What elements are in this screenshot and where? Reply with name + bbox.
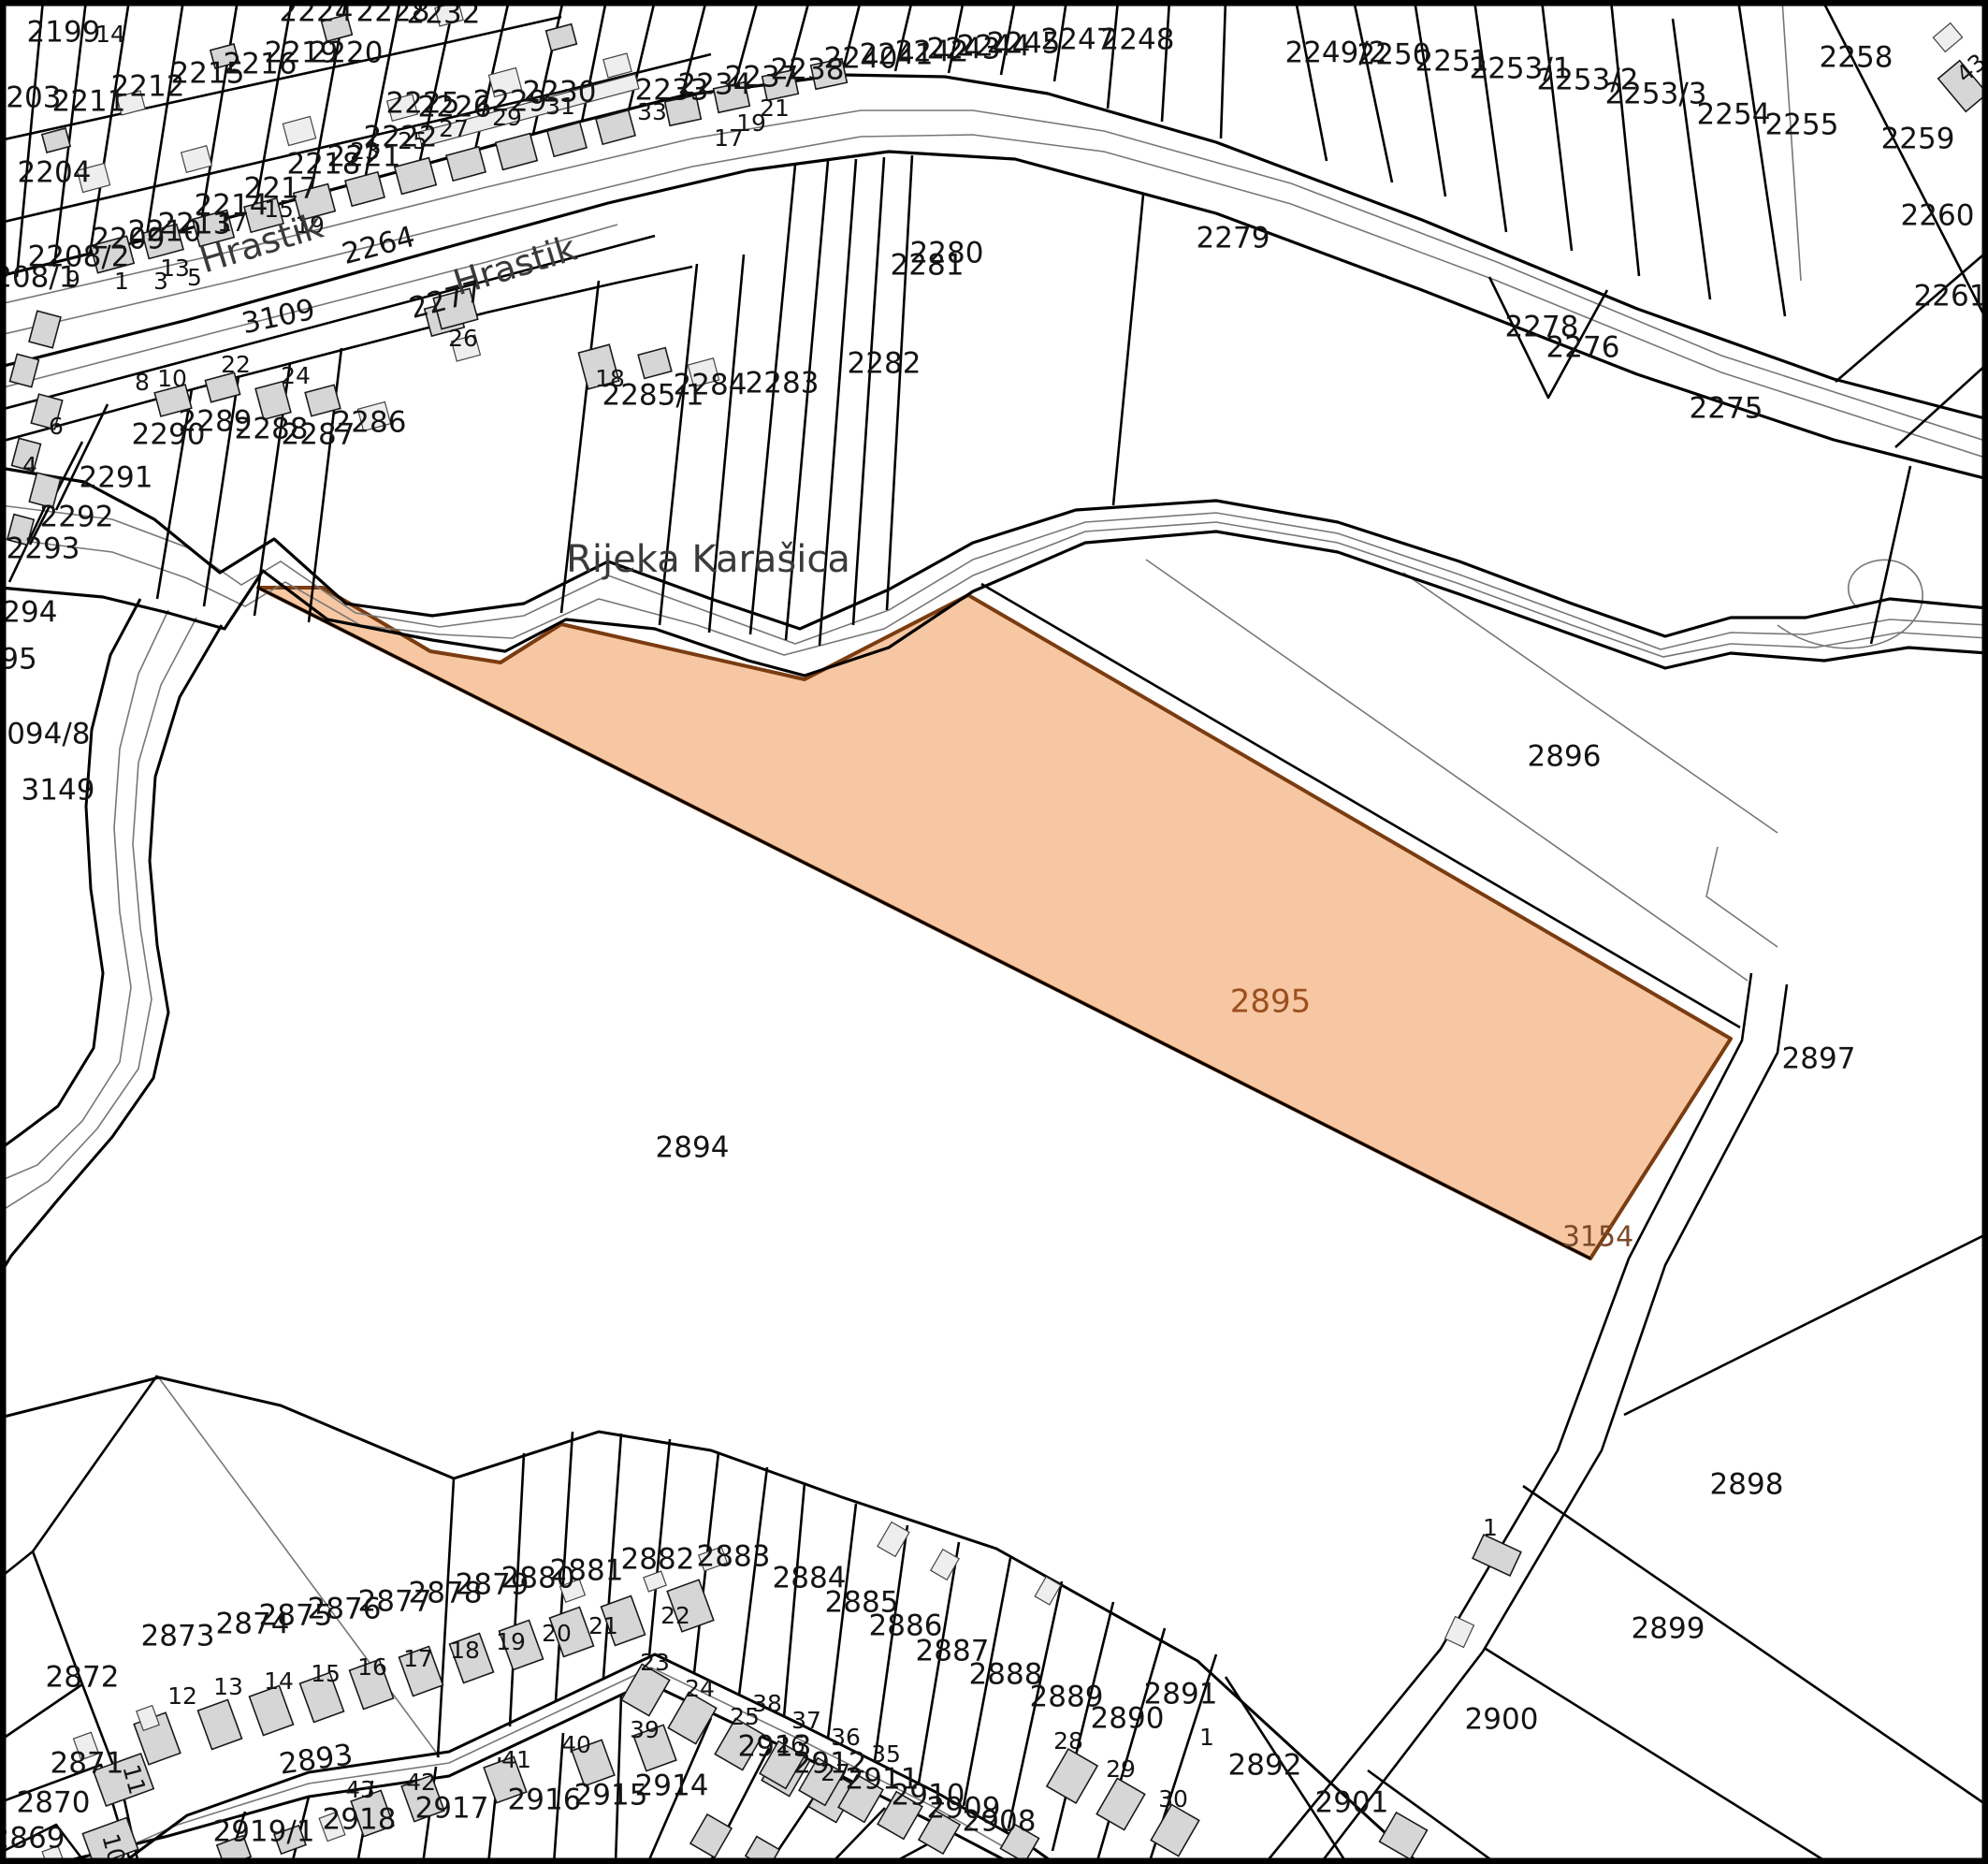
parcel-label-2894: 2894	[656, 1131, 730, 1165]
parcel-label-2254: 2254	[1697, 98, 1771, 132]
parcel-label-24: 24	[685, 1675, 715, 1702]
parcel-label-2870: 2870	[17, 1786, 91, 1820]
parcel-label-21: 21	[760, 95, 790, 122]
parcel-label-29: 29	[492, 104, 522, 131]
parcel-label-39: 39	[630, 1716, 660, 1743]
parcel-label-23: 23	[640, 1649, 670, 1676]
building	[283, 117, 315, 146]
parcel-label-38: 38	[752, 1690, 782, 1717]
parcel-label-29: 29	[1106, 1755, 1136, 1783]
parcel-label-2914: 2914	[635, 1769, 709, 1803]
parcel-label-2261: 2261	[1914, 280, 1988, 313]
parcel-label-2883: 2883	[697, 1540, 771, 1574]
building	[1445, 1617, 1474, 1648]
building	[1047, 1749, 1097, 1803]
parcel-label-2258: 2258	[1820, 41, 1894, 75]
building	[546, 24, 577, 51]
building	[181, 146, 212, 172]
parcel-label-2871: 2871	[51, 1747, 124, 1781]
parcel-label-2253-3: 2253/3	[1604, 78, 1706, 111]
river-name-label-Rijeka-Kara-ica: Rijeka Karašica	[566, 538, 850, 581]
parcel-label-18: 18	[595, 365, 625, 392]
parcel-label-2204: 2204	[18, 156, 92, 190]
parcel-label-2259: 2259	[1881, 123, 1955, 156]
parcel-label-37: 37	[791, 1707, 821, 1734]
cadastral-map: 2199142203221122122215221622192220222422…	[0, 0, 1988, 1864]
parcel-label-13: 13	[160, 255, 190, 282]
parcel-label-43: 43	[345, 1776, 375, 1803]
parcel-label-2917: 2917	[415, 1792, 489, 1826]
parcel-label-2916: 2916	[508, 1784, 582, 1817]
parcel-label-1: 1	[114, 268, 129, 295]
parcel-label-15: 15	[311, 1660, 341, 1687]
parcel-label-12: 12	[167, 1682, 197, 1710]
parcel-label-23: 23	[350, 138, 380, 165]
parcel-label-2918: 2918	[323, 1803, 397, 1837]
parcel-label-2908: 2908	[963, 1805, 1037, 1839]
parcel-label-2282: 2282	[848, 347, 921, 381]
parcel-label-2279: 2279	[1197, 222, 1270, 255]
parcel-label-2220: 2220	[310, 36, 384, 70]
parcel-label-9: 9	[65, 266, 80, 293]
parcel-label-10: 10	[157, 365, 187, 392]
parcel-label-2892: 2892	[1228, 1749, 1302, 1783]
parcel-label-30: 30	[1158, 1785, 1188, 1813]
parcel-label-14: 14	[264, 1667, 294, 1695]
building	[29, 311, 61, 348]
parcel-label-2919-1: 2919/1	[212, 1815, 314, 1849]
parcel-label-8: 8	[135, 369, 150, 396]
parcel-label-6: 6	[49, 413, 64, 440]
parcel-label-40: 40	[561, 1731, 591, 1758]
parcel-label-42: 42	[406, 1769, 436, 1796]
parcel-label-22: 22	[221, 351, 251, 378]
parcel-label-2873: 2873	[141, 1620, 215, 1653]
parcel-label-2872: 2872	[46, 1661, 120, 1695]
parcel-label-2199: 2199	[27, 16, 101, 50]
parcel-label-28: 28	[1053, 1727, 1083, 1755]
parcel-label-4: 4	[22, 452, 37, 479]
parcel-label-20: 20	[542, 1620, 572, 1647]
parcel-label-2255: 2255	[1765, 109, 1839, 142]
parcel-label-2264: 2264	[339, 220, 419, 271]
building	[42, 128, 70, 153]
parcel-label-2283: 2283	[746, 367, 820, 400]
parcel-label-2899: 2899	[1632, 1612, 1705, 1646]
parcel-label-2291: 2291	[80, 461, 153, 495]
highlighted-parcel-2895[interactable]	[258, 588, 1731, 1259]
parcel-label-3154: 3154	[1562, 1221, 1633, 1254]
parcel-label-2896: 2896	[1528, 740, 1602, 774]
parcel-label-2900: 2900	[1465, 1703, 1539, 1737]
building	[496, 134, 537, 170]
parcel-label-2881: 2881	[550, 1554, 624, 1588]
parcel-label-1: 1	[1199, 1724, 1214, 1751]
parcel-label-31: 31	[545, 93, 575, 120]
parcel-label-3149: 3149	[22, 774, 95, 808]
parcel-label-36: 36	[831, 1724, 861, 1751]
building	[446, 147, 486, 181]
parcel-label-2294: 2294	[0, 596, 57, 630]
parcel-label-2281: 2281	[891, 249, 965, 283]
parcel-label-35: 35	[871, 1740, 901, 1768]
parcel-label-26: 26	[448, 325, 478, 352]
building	[690, 1814, 732, 1857]
building	[10, 354, 39, 386]
parcel-label-1: 1	[1483, 1514, 1498, 1541]
parcel-label-2248: 2248	[1101, 23, 1175, 57]
building	[1096, 1778, 1144, 1829]
parcel-label-2293: 2293	[7, 532, 80, 566]
parcel-label-14: 14	[95, 21, 125, 48]
parcel-label-22: 22	[660, 1602, 690, 1629]
parcel-label-2891: 2891	[1144, 1678, 1218, 1711]
parcel-label-17: 17	[403, 1645, 433, 1672]
parcel-label-25: 25	[398, 127, 428, 154]
parcel-label-3094-8: 3094/8	[0, 718, 91, 751]
building	[931, 1550, 959, 1580]
parcel-label-19: 19	[496, 1628, 526, 1655]
parcel-label-2292: 2292	[40, 501, 114, 534]
parcel-label-2893: 2893	[277, 1738, 355, 1782]
highlighted-parcel-label-2895: 2895	[1230, 983, 1312, 1021]
building	[638, 348, 672, 379]
parcel-label-2901: 2901	[1315, 1786, 1389, 1820]
parcel-label-2898: 2898	[1710, 1468, 1784, 1502]
parcel-label-27: 27	[439, 115, 469, 142]
parcel-label-2290: 2290	[132, 418, 206, 452]
parcel-label-2882: 2882	[621, 1543, 695, 1577]
parcel-label-16: 16	[357, 1653, 387, 1681]
highlighted-parcel-group	[258, 584, 1740, 1259]
parcel-label-21: 21	[588, 1612, 618, 1639]
parcel-label-2275: 2275	[1690, 392, 1763, 426]
parcel-label-3109: 3109	[239, 293, 318, 342]
building	[1933, 23, 1962, 52]
parcel-label-41: 41	[501, 1746, 531, 1773]
building	[198, 1700, 242, 1750]
cadastral-map-viewport: 2199142203221122122215221622192220222422…	[0, 0, 1988, 1864]
parcel-label-18: 18	[450, 1637, 480, 1664]
parcel-label-2260: 2260	[1901, 199, 1975, 233]
parcel-label-24: 24	[281, 362, 311, 389]
parcel-label-2276: 2276	[1546, 331, 1620, 365]
parcel-label-2897: 2897	[1782, 1042, 1856, 1076]
parcel-label-13: 13	[213, 1673, 243, 1700]
parcel-label-2869: 2869	[0, 1822, 65, 1856]
